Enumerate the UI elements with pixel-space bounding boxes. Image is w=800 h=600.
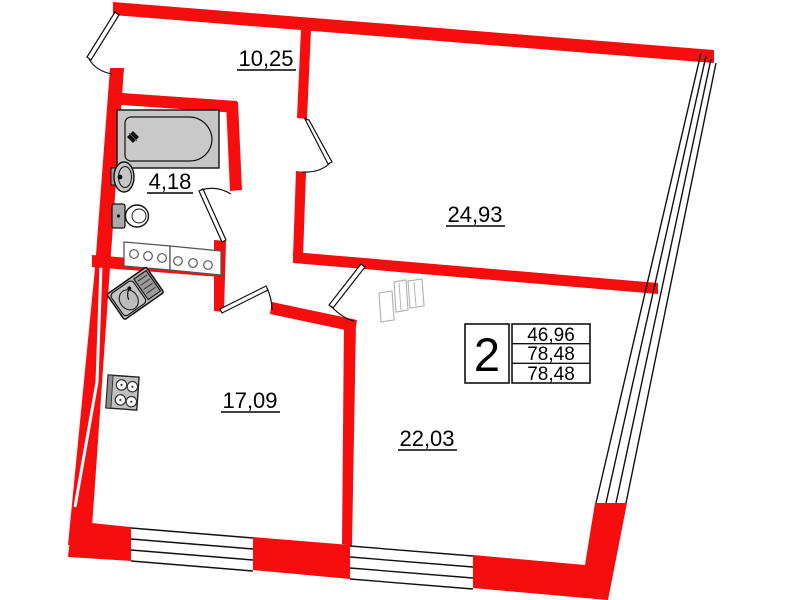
entry-door [87, 12, 119, 74]
wall-hall-bedroom-lower [293, 171, 306, 258]
info-box-value-2: 78,48 [527, 344, 575, 365]
bathtub [117, 110, 219, 168]
room-label-kitchen: 17,09 [222, 388, 277, 413]
stove [106, 375, 139, 410]
wall-bottom-middle [253, 537, 350, 579]
info-box-value-1: 46,96 [527, 325, 575, 346]
wall-bathroom-right [226, 102, 242, 191]
kitchen-door-leaf [220, 286, 268, 313]
info-box: 2 46,96 78,48 78,48 [465, 324, 590, 385]
room-label-bedroom: 24,93 [447, 202, 502, 227]
entry-door-leaf [87, 12, 119, 60]
toilet [112, 204, 149, 228]
room-label-bathroom: 4,18 [149, 169, 192, 194]
wall-bottom-left-corner [68, 521, 131, 561]
bedroom-door-leaf [305, 119, 332, 164]
sink-drain-icon [118, 175, 123, 180]
bedroom-door-arc [302, 163, 330, 172]
bedroom-door [302, 119, 332, 172]
window-bottom-left [131, 528, 253, 571]
entry-door-arc [89, 59, 112, 74]
room-label-living-room: 22,03 [399, 426, 454, 451]
apartment-room-count: 2 [474, 328, 500, 381]
wall-bottom-right-corner [473, 503, 627, 600]
floor-plan-page: 10,25 4,18 24,93 17,09 22,03 2 46,96 78,… [0, 0, 800, 600]
wall-hall-bedroom-upper [297, 29, 311, 119]
wall-kitchen-living [342, 320, 356, 546]
window-right [596, 53, 716, 503]
window-bottom-right [350, 546, 473, 589]
info-box-value-3: 78,48 [527, 364, 575, 385]
kitchen-door [220, 286, 272, 313]
kitchen-sink [107, 267, 164, 320]
wall-top [113, 2, 714, 63]
living-room-door [329, 264, 365, 321]
living-room-door-leaf [329, 264, 365, 308]
bathroom-door-leaf [199, 189, 226, 242]
bathroom-door [199, 188, 231, 242]
floor-plan-canvas: 10,25 4,18 24,93 17,09 22,03 2 46,96 78,… [0, 0, 800, 600]
closet-outline [379, 279, 424, 322]
room-label-hallway: 10,25 [238, 46, 293, 71]
